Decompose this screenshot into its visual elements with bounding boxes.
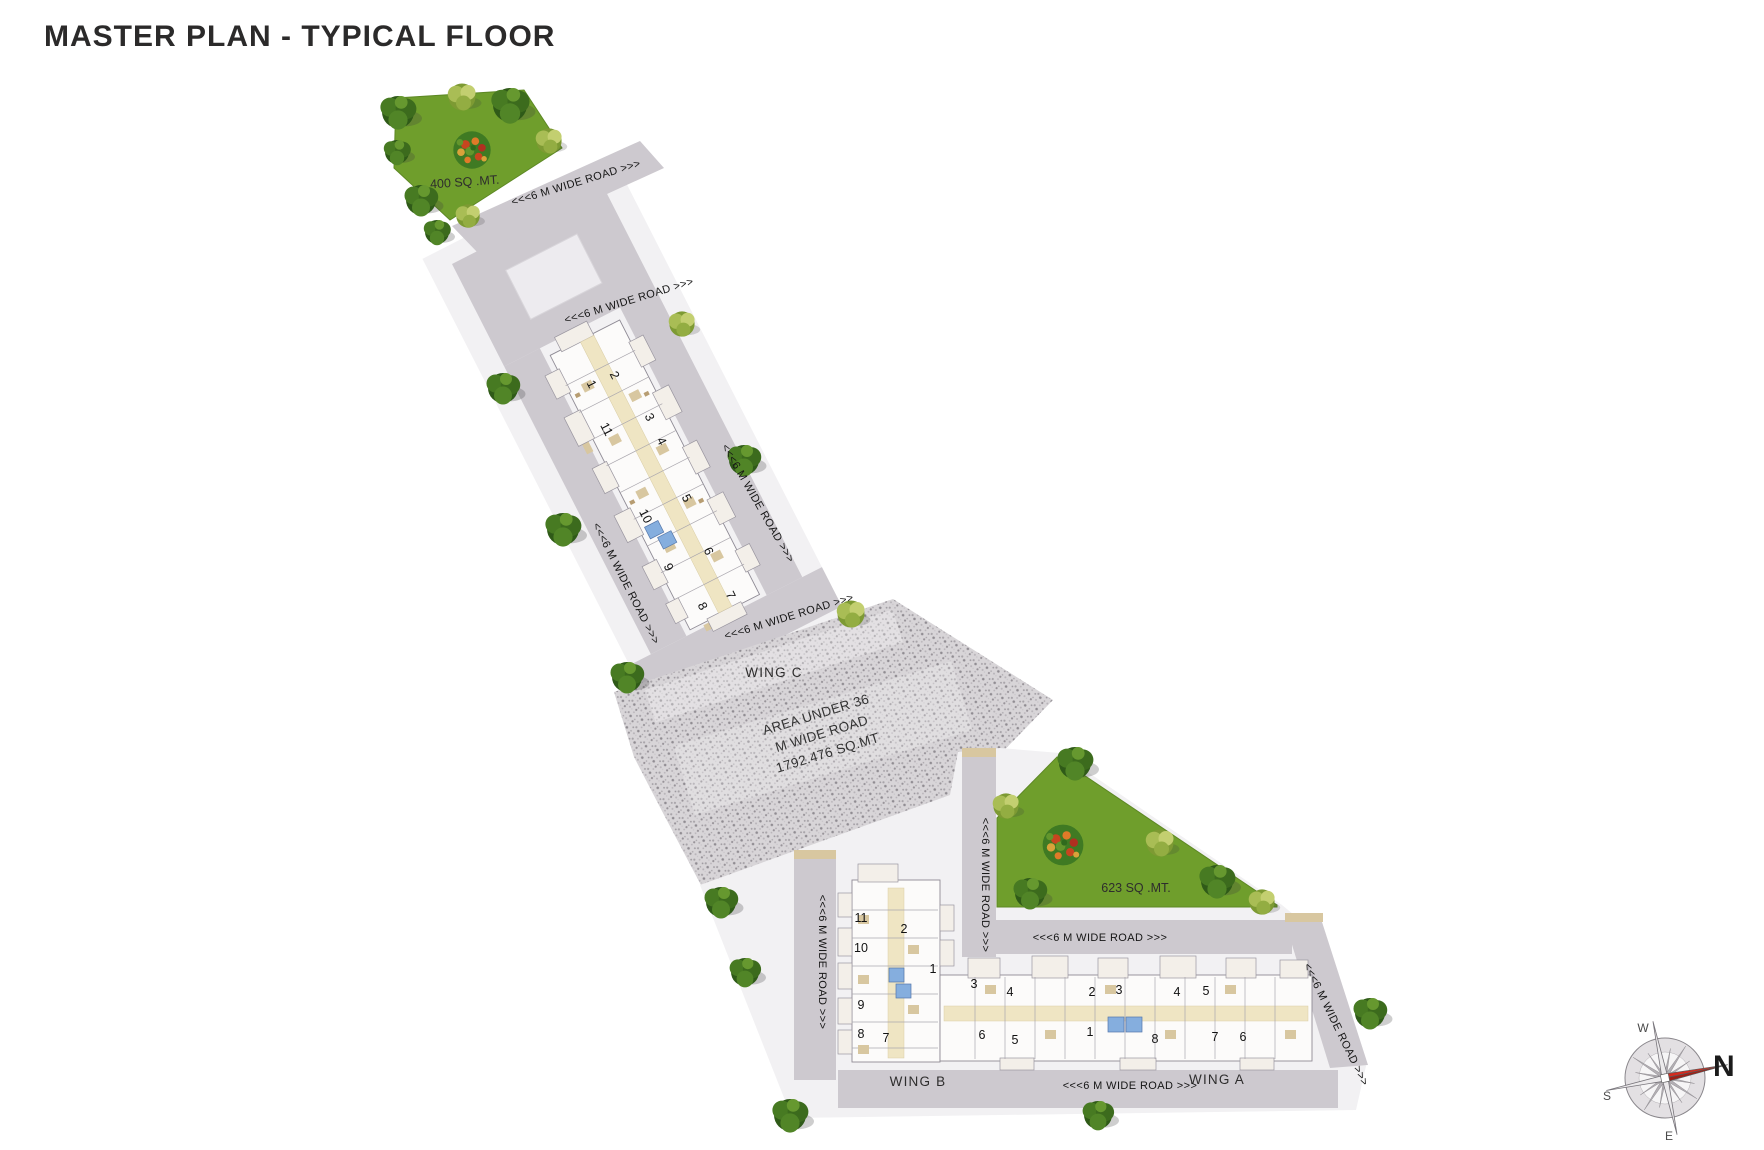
- wing-a-building: [940, 956, 1312, 1070]
- wing-a-unit-number: 5: [1203, 984, 1210, 998]
- wing-b-unit-number: 2: [901, 922, 908, 936]
- curb-strip: [794, 850, 836, 859]
- tree-icon: [1354, 998, 1393, 1030]
- curb-strip: [1285, 913, 1323, 922]
- wing-a-unit-number: 4: [1174, 985, 1181, 999]
- road-width-label: <<<6 M WIDE ROAD >>>: [816, 895, 828, 1030]
- wing-a-unit-number: 4: [1007, 985, 1014, 999]
- wing-b-unit-number: 8: [858, 1027, 865, 1041]
- tree-icon: [424, 220, 455, 245]
- compass-east-label: E: [1665, 1129, 1673, 1143]
- wing-b-building: [838, 864, 954, 1062]
- bush-icon: [536, 128, 568, 153]
- road-width-label: <<<6 M WIDE ROAD >>>: [1063, 1080, 1198, 1092]
- wing-a-unit-number: 8: [1152, 1032, 1159, 1046]
- flower-bed-icon: [1043, 825, 1084, 866]
- compass-rose: N W S E: [1603, 1021, 1735, 1143]
- compass-west-label: W: [1637, 1021, 1649, 1035]
- wing-b-unit-number: 10: [854, 941, 868, 955]
- wing-a-lift: [1108, 1017, 1124, 1032]
- wing-a-unit-number: 5: [1012, 1033, 1019, 1047]
- wing-a-unit-number: 3: [1116, 983, 1123, 997]
- wing-a-unit-number: 3: [971, 977, 978, 991]
- wing-b-unit-number: 9: [858, 998, 865, 1012]
- wing-b-unit-number: 1: [930, 962, 937, 976]
- wing-a-unit-number: 1: [1087, 1025, 1094, 1039]
- wing-b-unit-number: 11: [855, 911, 868, 925]
- wing-c-label: WING C: [745, 665, 802, 680]
- curb-strip: [962, 748, 996, 757]
- wing-b-unit-number: 7: [883, 1031, 890, 1045]
- wing-b-lift: [889, 968, 904, 982]
- east-garden-area-label: 623 SQ .MT.: [1101, 881, 1170, 895]
- wing-a-unit-number: 6: [979, 1028, 986, 1042]
- road-width-label: <<<6 M WIDE ROAD >>>: [979, 818, 991, 953]
- wing-b-label: WING B: [890, 1074, 947, 1089]
- master-plan-page: MASTER PLAN - TYPICAL FLOOR: [0, 0, 1764, 1150]
- wing-b-lift: [896, 984, 911, 998]
- wing-a-unit-number: 7: [1212, 1030, 1219, 1044]
- wing-a-lift: [1126, 1017, 1142, 1032]
- compass-north-label: N: [1713, 1050, 1735, 1083]
- wing-b-west-road: [794, 855, 836, 1080]
- site-plan-canvas: 400 SQ .MT. 623 SQ .MT. AREA UNDER 36 M …: [0, 0, 1764, 1150]
- wing-a-label: WING A: [1189, 1072, 1245, 1087]
- road-width-label: <<<6 M WIDE ROAD >>>: [1033, 932, 1168, 944]
- wing-a-unit-number: 6: [1240, 1030, 1247, 1044]
- flower-bed-icon: [453, 131, 490, 168]
- compass-south-label: S: [1603, 1089, 1611, 1103]
- wing-a-unit-number: 2: [1089, 985, 1096, 999]
